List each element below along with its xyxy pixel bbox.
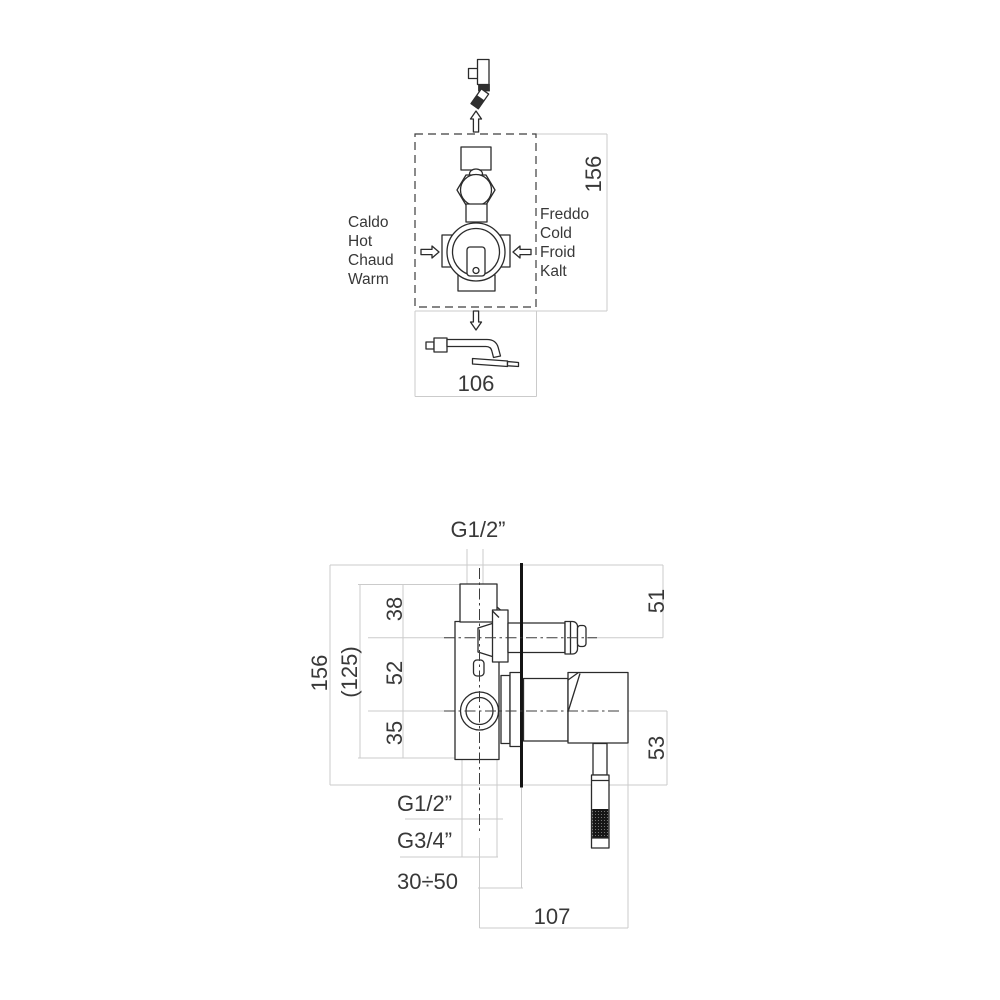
hot-label-it: Caldo (348, 214, 389, 231)
handle-hub (524, 679, 569, 742)
bottom-width-dimension: 107 (534, 904, 571, 929)
mixer-valve-front-view (442, 147, 510, 291)
segment-38-dimension: 38 (382, 597, 407, 621)
handle-stem (593, 744, 607, 776)
cold-label-it: Freddo (540, 206, 589, 223)
front-view-drawing: Caldo Hot Chaud Warm Freddo Cold Froid K… (348, 60, 607, 397)
handle-knurl (592, 809, 608, 838)
valve-top-port (461, 147, 491, 170)
segment-52-dimension: 52 (382, 661, 407, 685)
outlet-pipe-nipple (578, 626, 587, 647)
hot-inlet-arrow (421, 246, 439, 258)
mixer-installation-diagram: Caldo Hot Chaud Warm Freddo Cold Froid K… (0, 0, 1000, 1000)
hand-shower-icon (469, 60, 490, 109)
body-height-dimension: (125) (337, 646, 362, 697)
outlet-flange (493, 610, 509, 662)
top-connection-pipe (460, 584, 497, 622)
hot-water-labels: Caldo Hot Chaud Warm (348, 214, 394, 288)
top-thread-dimension: G1/2” (450, 517, 505, 542)
cold-label-fr: Froid (540, 244, 575, 261)
hot-label-de: Warm (348, 271, 389, 288)
overall-height-dimension: 156 (307, 655, 332, 692)
front-height-dimension: 156 (581, 156, 606, 193)
cold-label-de: Kalt (540, 263, 567, 280)
cold-water-labels: Freddo Cold Froid Kalt (540, 206, 589, 280)
front-width-dimension: 106 (458, 371, 495, 396)
hot-label-en: Hot (348, 233, 373, 250)
upper-right-dimension: 51 (644, 589, 669, 613)
segment-35-dimension: 35 (382, 721, 407, 745)
cold-inlet-arrow (513, 246, 531, 258)
cold-label-en: Cold (540, 225, 572, 242)
mixer-valve-side-view (455, 584, 628, 848)
technical-drawing-page: Caldo Hot Chaud Warm Freddo Cold Froid K… (0, 0, 1000, 1000)
hot-label-fr: Chaud (348, 252, 394, 269)
handle-escutcheon-plate (501, 676, 510, 744)
up-arrow-icon (471, 111, 482, 132)
spout-thread-dimension: G3/4” (397, 828, 452, 853)
down-arrow-icon (471, 311, 482, 330)
set-screw (474, 660, 485, 676)
outlet-thread-dimension: G1/2” (397, 791, 452, 816)
lever-handle (568, 673, 628, 849)
depth-range-dimension: 30÷50 (397, 869, 458, 894)
side-view-drawing: G1/2” 156 (125) 38 52 35 51 53 G1/2” G3/… (307, 517, 669, 929)
shower-arm-icon (426, 338, 519, 367)
lower-right-dimension: 53 (644, 736, 669, 760)
